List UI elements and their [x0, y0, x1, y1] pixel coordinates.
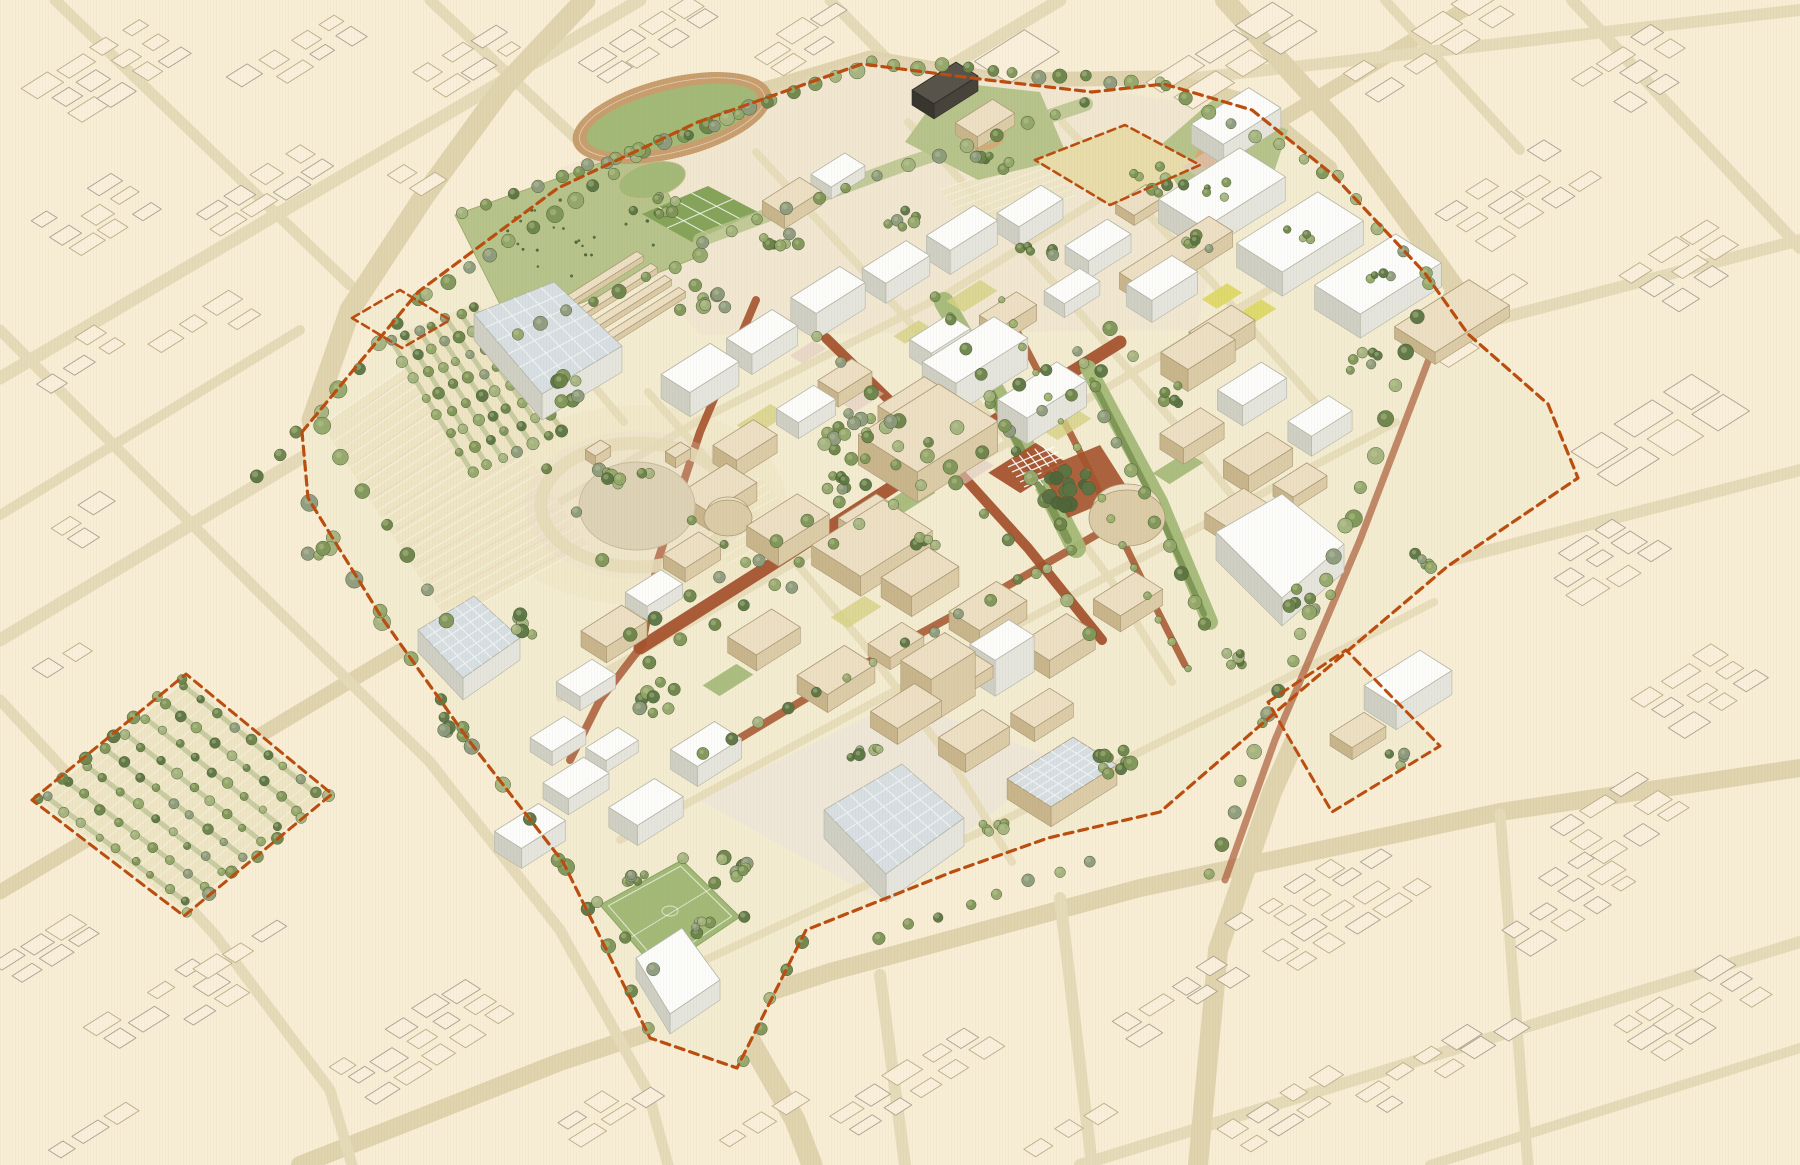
round-hall-base — [704, 500, 752, 536]
campus-master-plan-illustration — [0, 0, 1800, 1165]
campus-aerial-map — [0, 0, 1800, 1165]
